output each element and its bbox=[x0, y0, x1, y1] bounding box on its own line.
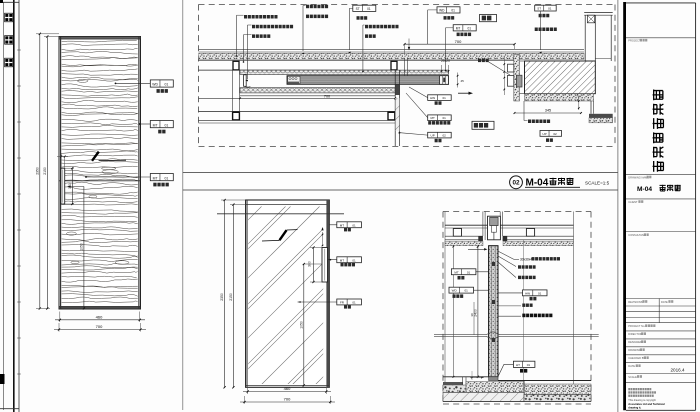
svg-text:30x30x4: 30x30x4 bbox=[520, 258, 532, 262]
svg-text:01: 01 bbox=[165, 123, 169, 127]
svg-text:2350: 2350 bbox=[35, 167, 39, 175]
svg-text:01: 01 bbox=[352, 223, 356, 227]
svg-text:01: 01 bbox=[352, 258, 356, 262]
svg-text:DIRECTOR: DIRECTOR bbox=[628, 332, 642, 336]
svg-text:MT: MT bbox=[456, 27, 461, 31]
svg-text:01: 01 bbox=[467, 270, 471, 274]
svg-text:CLIENT: CLIENT bbox=[628, 200, 638, 204]
svg-text:01: 01 bbox=[464, 289, 468, 293]
svg-text:1050: 1050 bbox=[79, 243, 83, 251]
svg-text:SCALE=1:5: SCALE=1:5 bbox=[585, 180, 610, 185]
svg-text:700: 700 bbox=[455, 39, 462, 44]
svg-text:01: 01 bbox=[165, 176, 169, 180]
svg-text:DATE: DATE bbox=[628, 364, 635, 368]
svg-text:DRAWING NAME: DRAWING NAME bbox=[628, 175, 649, 179]
svg-text:M-04: M-04 bbox=[637, 186, 652, 193]
svg-text:700: 700 bbox=[284, 397, 291, 402]
svg-text:UP: UP bbox=[431, 134, 435, 138]
svg-text:UP: UP bbox=[542, 132, 546, 136]
svg-text:HW: HW bbox=[430, 96, 435, 100]
svg-text:PROJECT No.: PROJECT No. bbox=[628, 324, 645, 328]
svg-text:01: 01 bbox=[442, 96, 446, 100]
svg-text:30: 30 bbox=[470, 313, 474, 317]
svg-text:345: 345 bbox=[545, 109, 551, 113]
svg-text:700: 700 bbox=[324, 94, 330, 98]
svg-text:REVISIONS: REVISIONS bbox=[628, 300, 642, 304]
svg-text:01: 01 bbox=[352, 301, 356, 305]
svg-text:700: 700 bbox=[96, 324, 103, 329]
svg-text:01: 01 bbox=[468, 27, 472, 31]
svg-text:WD: WD bbox=[452, 289, 458, 293]
svg-text:MT: MT bbox=[340, 258, 344, 262]
svg-text:DATE: DATE bbox=[661, 300, 668, 304]
svg-text:01: 01 bbox=[442, 116, 446, 120]
svg-text:45: 45 bbox=[461, 79, 465, 83]
svg-text:2016.4: 2016.4 bbox=[671, 367, 685, 372]
svg-text:01: 01 bbox=[527, 363, 531, 367]
svg-text:01: 01 bbox=[538, 291, 542, 295]
svg-text:CONSULTANT: CONSULTANT bbox=[628, 233, 646, 237]
svg-text:MT: MT bbox=[340, 223, 344, 227]
svg-text:Associates Ltd and Technical: Associates Ltd and Technical bbox=[628, 402, 665, 406]
svg-text:This drawing is copyright: This drawing is copyright bbox=[628, 399, 656, 402]
svg-text:drawing it.: drawing it. bbox=[628, 406, 641, 410]
svg-text:MT: MT bbox=[454, 270, 458, 274]
svg-text:1050: 1050 bbox=[299, 321, 303, 329]
svg-text:MT: MT bbox=[153, 176, 158, 180]
svg-text:2150: 2150 bbox=[229, 293, 233, 301]
svg-text:ST: ST bbox=[537, 7, 541, 11]
svg-text:02: 02 bbox=[512, 180, 520, 187]
svg-text:WD: WD bbox=[152, 83, 158, 87]
svg-text:01: 01 bbox=[548, 7, 552, 11]
svg-text:2150: 2150 bbox=[43, 167, 47, 175]
svg-text:02: 02 bbox=[442, 134, 446, 138]
svg-text:460: 460 bbox=[96, 314, 103, 319]
svg-text:01: 01 bbox=[367, 7, 371, 11]
svg-text:01: 01 bbox=[165, 83, 169, 87]
svg-text:01: 01 bbox=[451, 9, 455, 13]
svg-text:MT: MT bbox=[153, 123, 158, 127]
svg-text:2350: 2350 bbox=[220, 293, 224, 301]
svg-text:02: 02 bbox=[553, 132, 557, 136]
svg-text:DESIGNER: DESIGNER bbox=[628, 340, 642, 344]
svg-text:HT: HT bbox=[516, 363, 520, 367]
svg-text:MT: MT bbox=[430, 116, 434, 120]
svg-text:DRAWING: DRAWING bbox=[628, 348, 640, 352]
svg-text:WD: WD bbox=[439, 9, 445, 13]
svg-text:SCALE: SCALE bbox=[628, 375, 637, 379]
svg-text:CHECKED BY: CHECKED BY bbox=[628, 356, 645, 360]
svg-text:460: 460 bbox=[284, 386, 291, 391]
svg-text:PROJECT: PROJECT bbox=[628, 39, 641, 43]
svg-text:ST: ST bbox=[356, 7, 360, 11]
svg-text:HW: HW bbox=[525, 291, 530, 295]
